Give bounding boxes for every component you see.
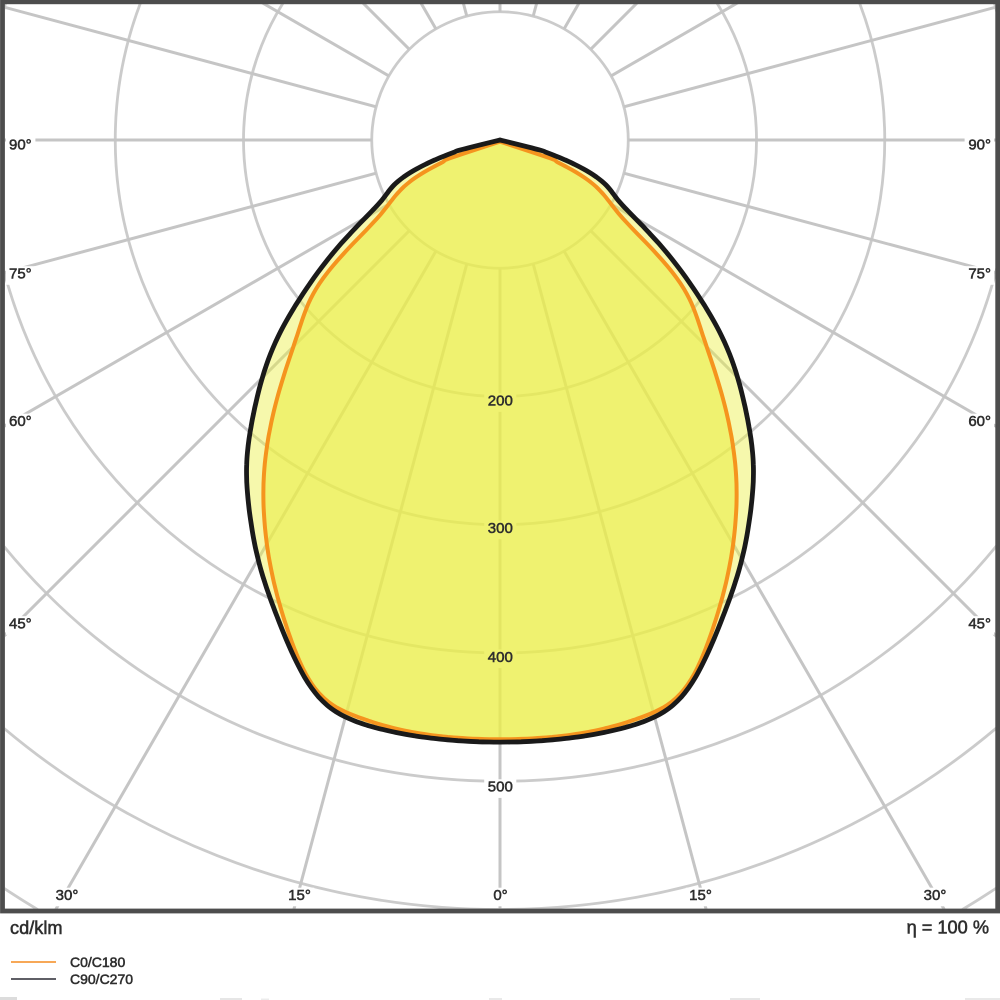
svg-text:400: 400: [488, 649, 513, 666]
svg-text:C0/C180: C0/C180: [70, 954, 125, 970]
svg-text:60°: 60°: [968, 413, 991, 430]
svg-text:15°: 15°: [689, 887, 712, 904]
svg-text:30°: 30°: [56, 887, 79, 904]
svg-text:0°: 0°: [493, 887, 507, 904]
svg-text:75°: 75°: [9, 266, 32, 283]
svg-text:60°: 60°: [9, 413, 32, 430]
svg-text:η = 100 %: η = 100 %: [907, 918, 989, 938]
svg-text:45°: 45°: [9, 616, 32, 633]
svg-text:75°: 75°: [968, 266, 991, 283]
svg-text:90°: 90°: [9, 137, 32, 154]
svg-text:45°: 45°: [968, 616, 991, 633]
svg-text:15°: 15°: [288, 887, 311, 904]
svg-text:500: 500: [488, 779, 513, 796]
svg-text:C90/C270: C90/C270: [70, 971, 133, 987]
svg-text:30°: 30°: [924, 887, 947, 904]
svg-text:300: 300: [488, 520, 513, 537]
svg-text:200: 200: [488, 393, 513, 410]
svg-text:90°: 90°: [968, 137, 991, 154]
svg-text:cd/klm: cd/klm: [10, 918, 63, 938]
